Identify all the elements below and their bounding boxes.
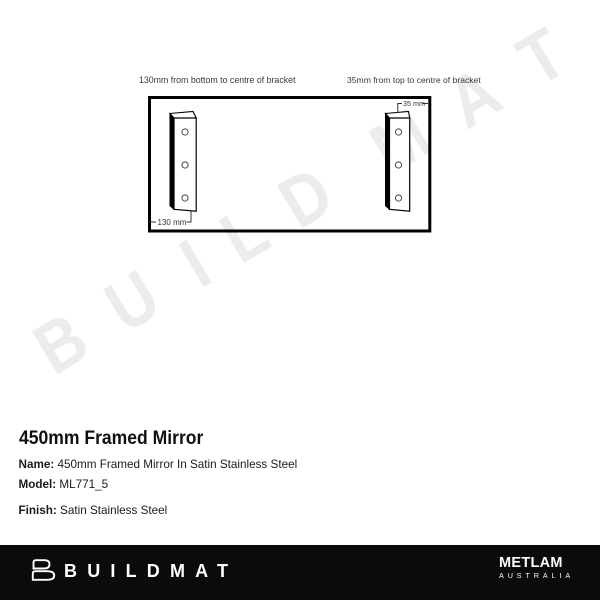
svg-text:130 mm: 130 mm (158, 218, 187, 227)
svg-text:35 mm: 35 mm (403, 99, 425, 108)
